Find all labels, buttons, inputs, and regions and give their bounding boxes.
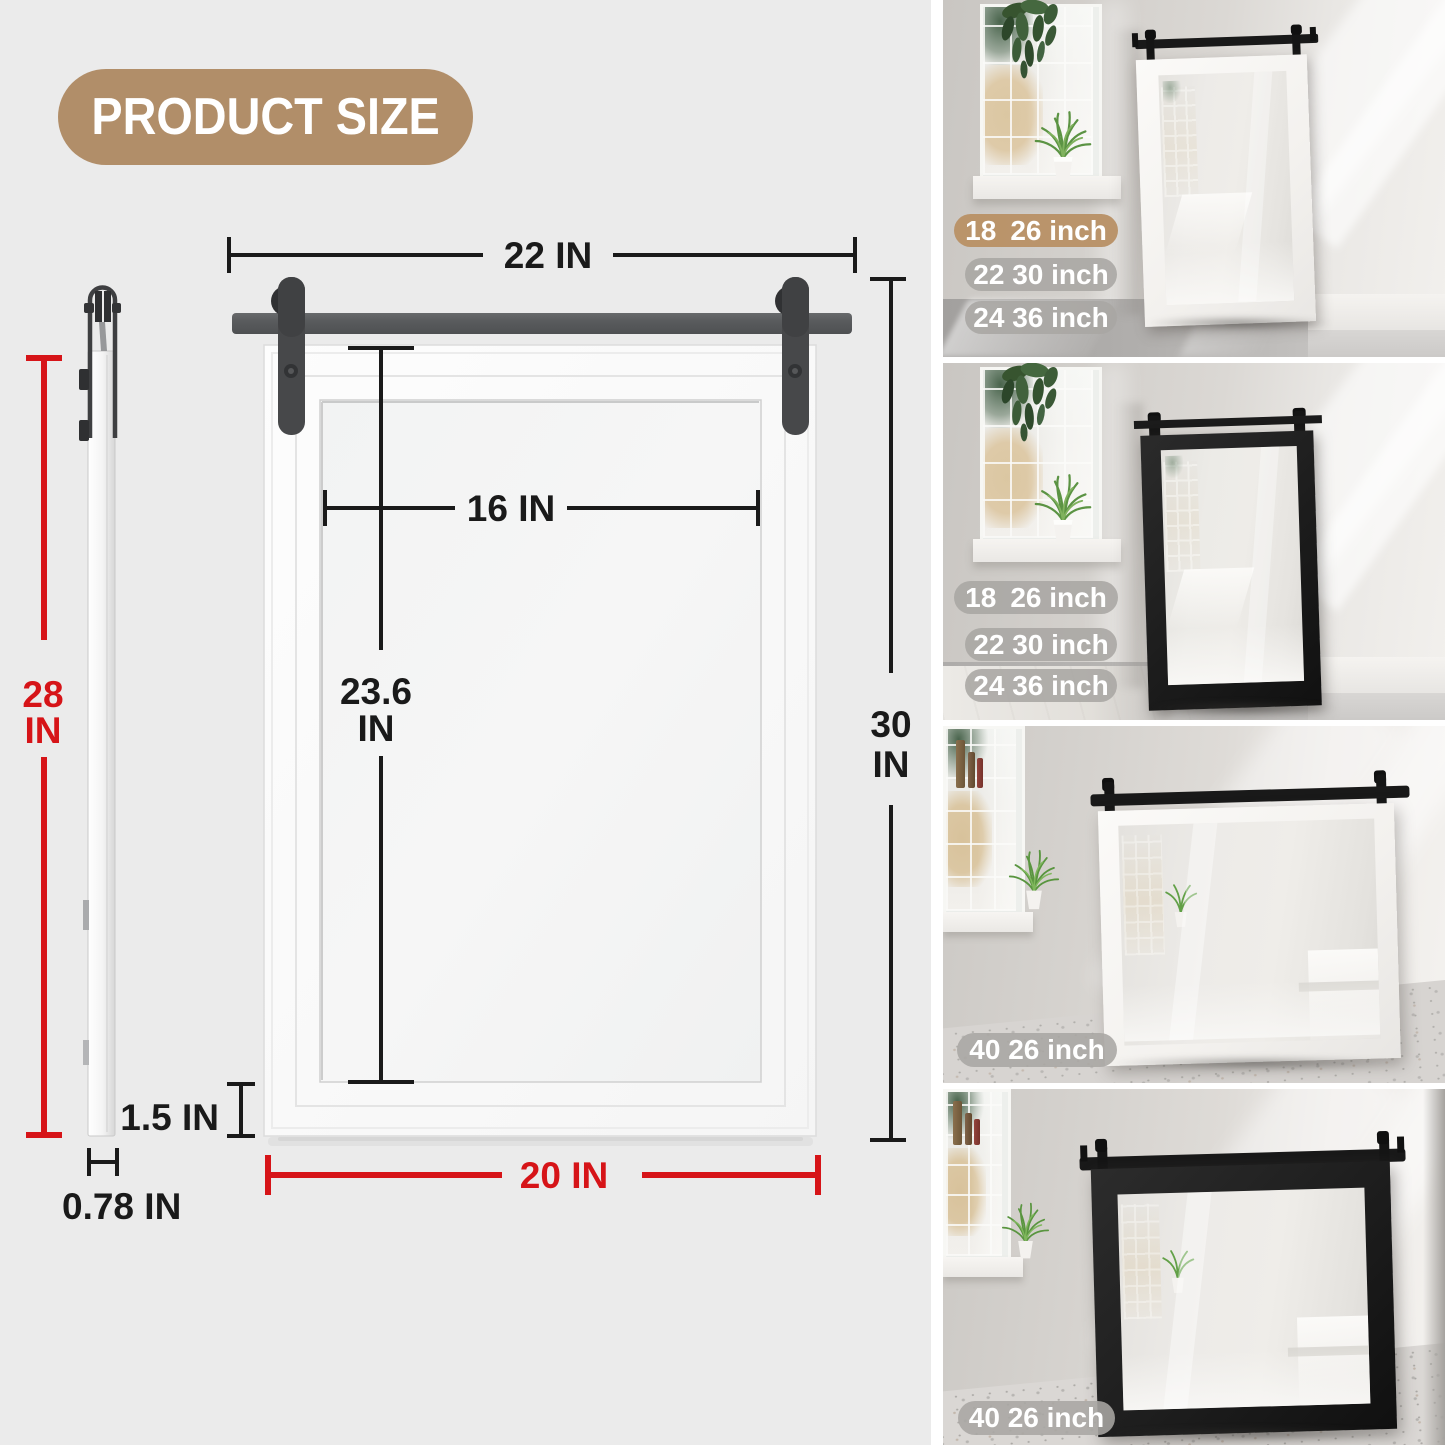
svg-text:IN: IN <box>358 708 395 749</box>
svg-text:23.6: 23.6 <box>340 671 412 712</box>
svg-text:1.5 IN: 1.5 IN <box>120 1097 219 1138</box>
svg-text:30: 30 <box>870 704 911 745</box>
svg-text:IN: IN <box>873 744 910 785</box>
svg-text:20 IN: 20 IN <box>520 1155 608 1196</box>
svg-text:16 IN: 16 IN <box>467 488 555 529</box>
svg-text:IN: IN <box>25 710 62 751</box>
svg-text:0.78 IN: 0.78 IN <box>62 1186 181 1227</box>
svg-text:22 IN: 22 IN <box>504 235 592 276</box>
svg-text:28: 28 <box>22 674 63 715</box>
